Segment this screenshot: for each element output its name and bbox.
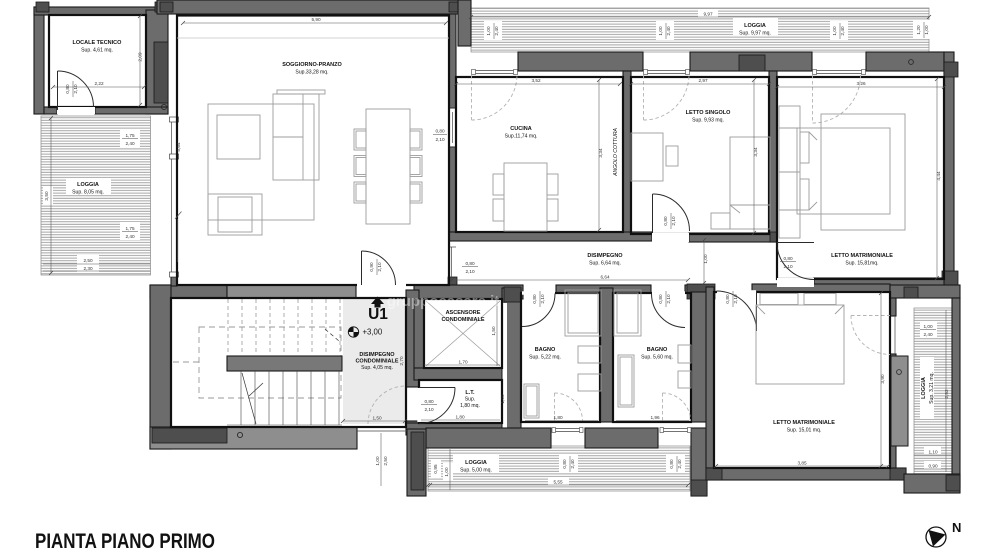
svg-text:0,80: 0,80	[783, 256, 793, 261]
svg-text:2,10: 2,10	[783, 264, 793, 269]
svg-text:2,40: 2,40	[125, 141, 135, 146]
svg-text:1,75: 1,75	[125, 133, 135, 138]
svg-text:0,90: 0,90	[369, 262, 374, 272]
svg-text:LETTO MATRIMONIALE: LETTO MATRIMONIALE	[773, 420, 835, 426]
svg-text:Sup. 4,61 mq.: Sup. 4,61 mq.	[81, 48, 113, 54]
svg-text:BAGNO: BAGNO	[647, 347, 668, 353]
svg-text:2,10: 2,10	[671, 216, 676, 226]
svg-text:LETTO MATRIMONIALE: LETTO MATRIMONIALE	[831, 253, 893, 259]
svg-text:Sup. 15,81mq.: Sup. 15,81mq.	[845, 261, 878, 267]
svg-text:Sup. 5,00 mq.: Sup. 5,00 mq.	[460, 468, 492, 474]
svg-text:DISIMPEGNO: DISIMPEGNO	[587, 253, 623, 259]
svg-text:ANGOLO COTTURA: ANGOLO COTTURA	[613, 127, 619, 176]
svg-text:0,80: 0,80	[663, 216, 668, 226]
svg-text:1,00: 1,00	[375, 456, 380, 466]
svg-text:3,50: 3,50	[44, 191, 49, 201]
svg-text:Sup. 9,97 mq.: Sup. 9,97 mq.	[739, 31, 771, 37]
svg-text:2,30: 2,30	[83, 266, 93, 271]
svg-text:0,80: 0,80	[424, 399, 434, 404]
svg-text:0,80: 0,80	[658, 294, 663, 304]
svg-text:DISIMPEGNO: DISIMPEGNO	[359, 352, 395, 358]
svg-text:1,00: 1,00	[703, 254, 708, 264]
svg-text:LOGGIA: LOGGIA	[921, 377, 927, 399]
svg-text:PIANTA PIANO PRIMO: PIANTA PIANO PRIMO	[35, 530, 215, 550]
svg-text:1,50: 1,50	[372, 416, 382, 421]
svg-text:1,00: 1,00	[486, 26, 491, 36]
svg-text:0,90: 0,90	[928, 464, 938, 469]
svg-text:+3,00: +3,00	[363, 328, 383, 337]
svg-text:1,00: 1,00	[832, 26, 837, 36]
svg-text:Sup.33,28 mq.: Sup.33,28 mq.	[295, 70, 328, 76]
svg-text:N: N	[952, 520, 961, 535]
svg-text:0,80: 0,80	[725, 294, 730, 304]
svg-text:4,44: 4,44	[936, 171, 941, 181]
svg-text:2,10: 2,10	[435, 137, 445, 142]
svg-text:Sup. 3,21 mq.: Sup. 3,21 mq.	[929, 372, 935, 404]
svg-text:1,00: 1,00	[924, 25, 929, 35]
svg-text:2,40: 2,40	[840, 26, 845, 36]
svg-text:LOGGIA: LOGGIA	[744, 23, 766, 29]
svg-text:1,80: 1,80	[455, 415, 465, 420]
svg-text:Sup. 5,60 mq.: Sup. 5,60 mq.	[641, 355, 673, 361]
svg-text:U1: U1	[368, 306, 388, 323]
svg-text:0,80: 0,80	[532, 294, 537, 304]
svg-text:2,10: 2,10	[465, 269, 475, 274]
svg-text:LOGGIA: LOGGIA	[465, 460, 487, 466]
svg-text:CONDOMINIALE: CONDOMINIALE	[441, 317, 484, 323]
svg-text:0,95: 0,95	[433, 464, 438, 474]
svg-text:2,10: 2,10	[666, 294, 671, 304]
svg-text:CUCINA: CUCINA	[510, 126, 531, 132]
svg-text:2,10: 2,10	[377, 262, 382, 272]
svg-text:3,52: 3,52	[531, 78, 541, 83]
svg-text:SOGGIORNO-PRANZO: SOGGIORNO-PRANZO	[282, 62, 342, 68]
svg-text:3,34: 3,34	[598, 148, 603, 158]
svg-text:3,26: 3,26	[856, 81, 866, 86]
svg-text:2,40: 2,40	[125, 234, 135, 239]
svg-text:2,10: 2,10	[733, 294, 738, 304]
svg-text:5,90: 5,90	[311, 17, 321, 22]
svg-text:ASCENSORE: ASCENSORE	[446, 310, 481, 316]
svg-text:BAGNO: BAGNO	[535, 347, 556, 353]
svg-text:1,20: 1,20	[916, 25, 921, 35]
svg-text:3,34: 3,34	[753, 147, 758, 157]
svg-text:5,55: 5,55	[553, 480, 563, 485]
svg-text:Sup. 4,05 mq.: Sup. 4,05 mq.	[361, 365, 393, 371]
svg-text:0,80: 0,80	[562, 459, 567, 469]
svg-text:5,64: 5,64	[176, 142, 181, 152]
svg-text:0,80: 0,80	[65, 84, 70, 94]
svg-text:2,09: 2,09	[138, 52, 143, 62]
svg-text:2,10: 2,10	[540, 294, 545, 304]
svg-text:3,85: 3,85	[797, 461, 807, 466]
svg-text:Sup. 8,05 mq.: Sup. 8,05 mq.	[72, 190, 104, 196]
svg-text:2,52: 2,52	[944, 389, 949, 399]
svg-text:LOCALE TECNICO: LOCALE TECNICO	[73, 40, 123, 46]
svg-text:Sup. 15,01 mq.: Sup. 15,01 mq.	[787, 428, 822, 434]
svg-text:LOGGIA: LOGGIA	[77, 182, 99, 188]
svg-text:1,75: 1,75	[125, 226, 135, 231]
svg-text:1,50: 1,50	[491, 326, 496, 336]
svg-text:2,40: 2,40	[677, 459, 682, 469]
svg-text:2,22: 2,22	[94, 81, 104, 86]
svg-text:2,70: 2,70	[399, 356, 404, 366]
svg-text:2,50: 2,50	[83, 258, 93, 263]
svg-text:1,00: 1,00	[444, 467, 449, 477]
svg-text:2,10: 2,10	[424, 407, 434, 412]
svg-text:0,80: 0,80	[465, 261, 475, 266]
svg-text:2,50: 2,50	[383, 456, 388, 466]
svg-text:0,80: 0,80	[669, 459, 674, 469]
svg-text:2,97: 2,97	[698, 78, 708, 83]
svg-text:Sup.: Sup.	[465, 397, 475, 403]
svg-text:Sup.11,74 mq.: Sup.11,74 mq.	[505, 134, 538, 140]
svg-text:2,40: 2,40	[666, 26, 671, 36]
svg-text:0,80: 0,80	[435, 129, 445, 134]
svg-text:2,10: 2,10	[73, 84, 78, 94]
svg-text:Sup. 6,64 mq.: Sup. 6,64 mq.	[589, 261, 621, 267]
svg-text:1,00: 1,00	[923, 324, 933, 329]
svg-text:9,97: 9,97	[703, 12, 713, 17]
svg-text:1,80: 1,80	[553, 415, 563, 420]
svg-text:6,64: 6,64	[600, 275, 610, 280]
svg-text:CONDOMINIALE: CONDOMINIALE	[355, 359, 398, 365]
svg-text:1,70: 1,70	[458, 360, 468, 365]
svg-text:2,40: 2,40	[494, 26, 499, 36]
svg-text:gruppocasare.it: gruppocasare.it	[387, 293, 500, 310]
svg-text:1,00: 1,00	[658, 26, 663, 36]
svg-text:1,80 mq.: 1,80 mq.	[460, 403, 480, 409]
svg-text:1,00: 1,00	[500, 394, 505, 404]
svg-text:1,10: 1,10	[928, 450, 938, 455]
svg-text:1,96: 1,96	[650, 415, 660, 420]
svg-text:LETTO SINGOLO: LETTO SINGOLO	[686, 110, 732, 116]
svg-text:2,40: 2,40	[923, 332, 933, 337]
svg-text:L.T.: L.T.	[465, 390, 475, 396]
svg-text:3,90: 3,90	[880, 374, 885, 384]
svg-text:Sup. 9,93 mq.: Sup. 9,93 mq.	[692, 118, 724, 124]
svg-text:2,40: 2,40	[570, 459, 575, 469]
svg-text:Sup. 5,22 mq.: Sup. 5,22 mq.	[529, 355, 561, 361]
